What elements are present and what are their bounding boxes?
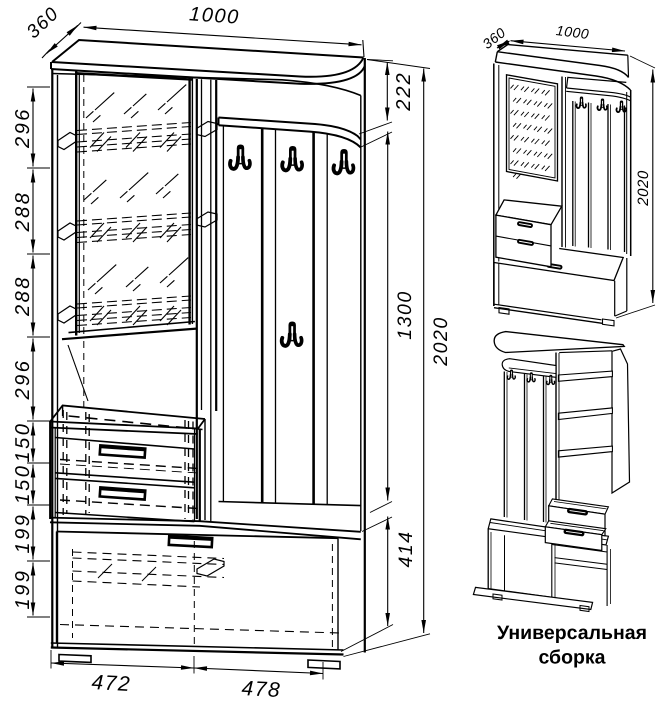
svg-text:222: 222: [393, 71, 415, 111]
svg-text:296: 296: [12, 107, 34, 149]
svg-text:150: 150: [12, 422, 34, 463]
svg-text:478: 478: [241, 677, 282, 700]
svg-text:сборка: сборка: [538, 647, 605, 669]
svg-text:1000: 1000: [188, 3, 240, 28]
svg-text:150: 150: [12, 464, 34, 505]
svg-text:2020: 2020: [635, 170, 652, 207]
svg-text:Универсальная: Универсальная: [497, 622, 647, 644]
svg-text:1300: 1300: [394, 290, 416, 339]
svg-text:199: 199: [12, 513, 34, 554]
svg-text:199: 199: [12, 569, 34, 610]
svg-text:288: 288: [12, 275, 34, 317]
svg-text:296: 296: [12, 359, 34, 401]
svg-text:414: 414: [395, 530, 417, 567]
svg-text:288: 288: [12, 191, 34, 233]
svg-text:2020: 2020: [430, 316, 452, 366]
svg-text:472: 472: [91, 671, 132, 696]
